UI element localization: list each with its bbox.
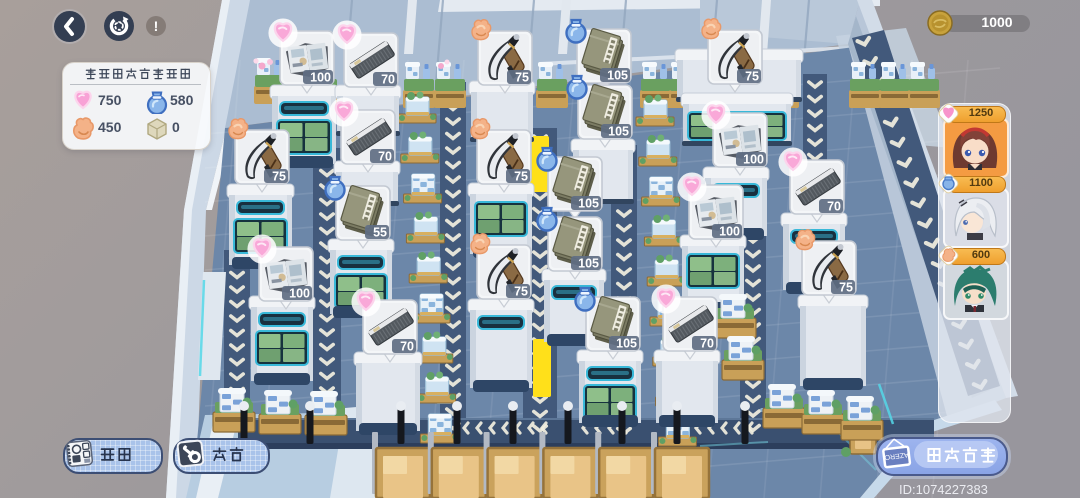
svg-text:55: 55 — [373, 226, 387, 240]
svg-text:105: 105 — [607, 69, 628, 83]
svg-text:70: 70 — [378, 150, 392, 164]
svg-text:100: 100 — [289, 287, 310, 301]
svg-text:70: 70 — [700, 337, 714, 351]
svg-text:70: 70 — [381, 73, 395, 87]
svg-text:75: 75 — [839, 281, 853, 295]
svg-text:100: 100 — [743, 153, 764, 167]
svg-text:75: 75 — [745, 70, 759, 84]
svg-text:75: 75 — [515, 71, 529, 85]
svg-text:105: 105 — [608, 125, 629, 139]
svg-text:75: 75 — [514, 170, 528, 184]
svg-text:75: 75 — [272, 170, 286, 184]
svg-text:105: 105 — [578, 197, 599, 211]
svg-text:100: 100 — [310, 71, 331, 85]
svg-text:75: 75 — [514, 285, 528, 299]
svg-text:105: 105 — [578, 257, 599, 271]
svg-text:70: 70 — [827, 200, 841, 214]
svg-text:105: 105 — [616, 337, 637, 351]
svg-text:70: 70 — [400, 340, 414, 354]
svg-text:100: 100 — [719, 225, 740, 239]
